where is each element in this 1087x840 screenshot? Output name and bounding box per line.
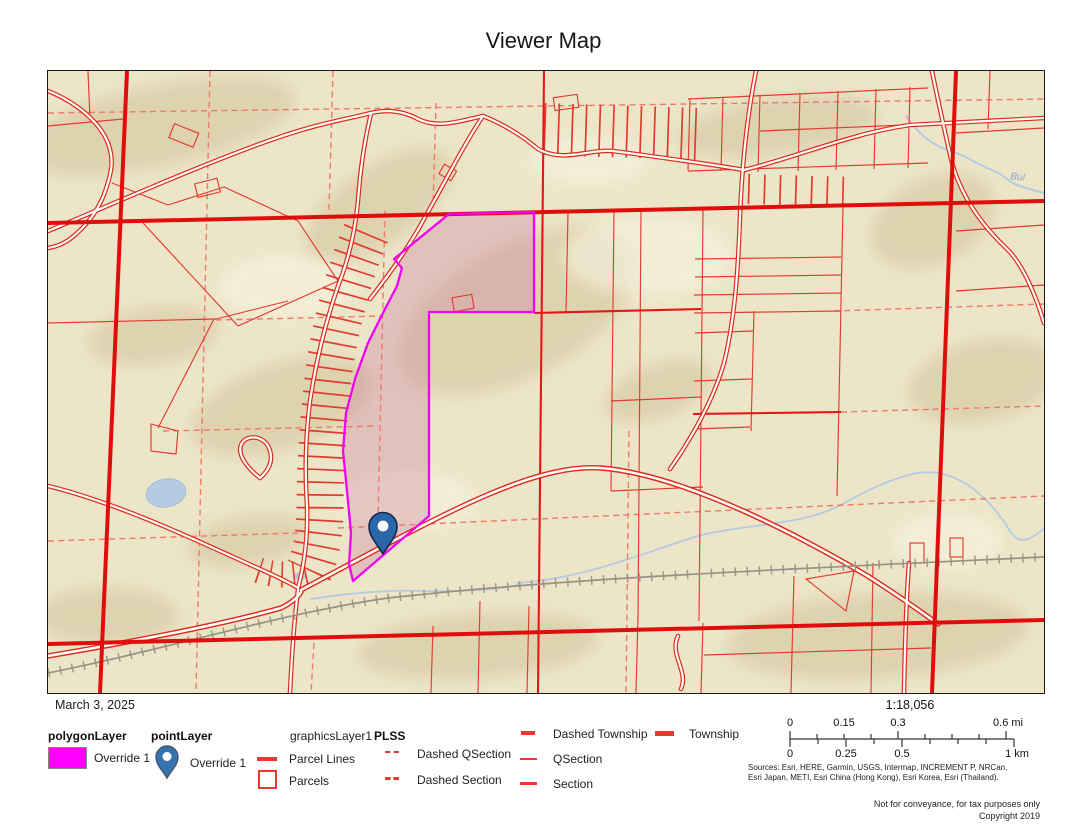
legend-item-label: Township: [689, 727, 739, 741]
scale-km-tick: 1 km: [994, 748, 1040, 760]
legend-item-label: Parcels: [289, 774, 329, 788]
polygon-swatch: [48, 747, 87, 769]
map-image: Bul: [48, 71, 1044, 693]
sources-line2: Esri Japan, METI, Esri China (Hong Kong)…: [748, 773, 999, 782]
scale-km-tick: 0.5: [882, 748, 922, 760]
parcel-lines-swatch: [257, 757, 277, 761]
section-swatch: [520, 782, 537, 785]
legend-item-label: Parcel Lines: [289, 752, 355, 766]
map-date: March 3, 2025: [55, 698, 135, 712]
scale-km-tick: 0.25: [826, 748, 866, 760]
legend-item-label: QSection: [553, 752, 602, 766]
legend-group-pointlayer: pointLayer: [151, 729, 212, 743]
legend-item-label: Dashed Section: [417, 773, 502, 787]
legend-item-label: Section: [553, 777, 593, 791]
legend-item-label: Override 1: [94, 751, 150, 765]
legend-group-plss: PLSS: [374, 729, 405, 743]
township-swatch: [655, 731, 674, 736]
dashed-section-swatch: [385, 777, 399, 780]
parcels-swatch: [258, 770, 277, 789]
legend-group-graphicslayer1: graphicsLayer1: [290, 729, 372, 743]
legend-group-polygonlayer: polygonLayer: [48, 729, 127, 743]
scale-ratio: 1:18,056: [800, 698, 1020, 712]
qsection-swatch: [520, 758, 537, 760]
page-title: Viewer Map: [0, 28, 1087, 54]
stream-label: Bul: [1010, 171, 1027, 184]
legend-item-label: Dashed QSection: [417, 747, 511, 761]
copyright-text: Copyright 2019: [979, 811, 1040, 821]
scale-km-tick: 0: [780, 748, 800, 760]
sources-attribution: Sources: Esri, HERE, Garmin, USGS, Inter…: [748, 763, 1058, 783]
map-canvas[interactable]: Bul: [47, 70, 1045, 694]
map-export-page: Viewer Map: [0, 0, 1087, 840]
legend-item-label: Override 1: [190, 756, 246, 770]
scale-mi-tick: 0.15: [824, 717, 864, 729]
sources-line1: Sources: Esri, HERE, Garmin, USGS, Inter…: [748, 763, 1007, 772]
scale-mi-tick: 0.3: [878, 717, 918, 729]
scale-mi-tick: 0: [780, 717, 800, 729]
scale-mi-tick: 0.6 mi: [986, 717, 1030, 729]
location-pin-icon: [153, 742, 181, 782]
dashed-qsection-swatch: [385, 751, 399, 753]
dashed-township-swatch: [521, 731, 535, 735]
scale-bar: [780, 731, 1040, 747]
disclaimer-text: Not for conveyance, for tax purposes onl…: [874, 799, 1040, 809]
legend-item-label: Dashed Township: [553, 727, 648, 741]
